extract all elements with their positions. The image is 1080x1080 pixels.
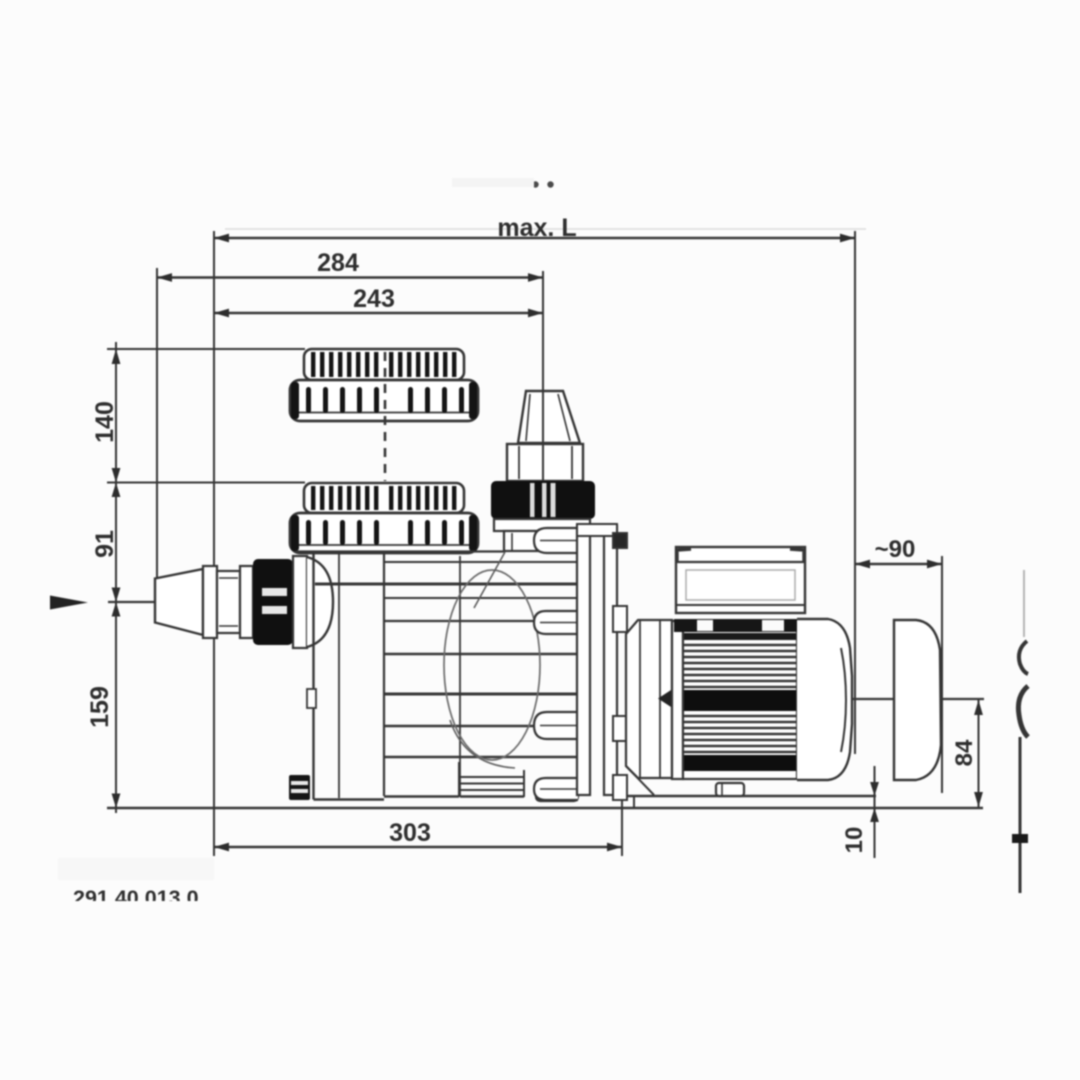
svg-text:84: 84 <box>951 739 978 766</box>
svg-text:10: 10 <box>841 827 868 854</box>
svg-text:303: 303 <box>389 819 431 847</box>
svg-text:243: 243 <box>353 285 395 313</box>
svg-text:284: 284 <box>317 249 359 277</box>
svg-text:159: 159 <box>86 686 114 728</box>
svg-text:91: 91 <box>91 530 119 558</box>
svg-text:140: 140 <box>91 401 119 443</box>
svg-text:~90: ~90 <box>875 536 916 563</box>
svg-text:max. L: max. L <box>497 214 576 242</box>
